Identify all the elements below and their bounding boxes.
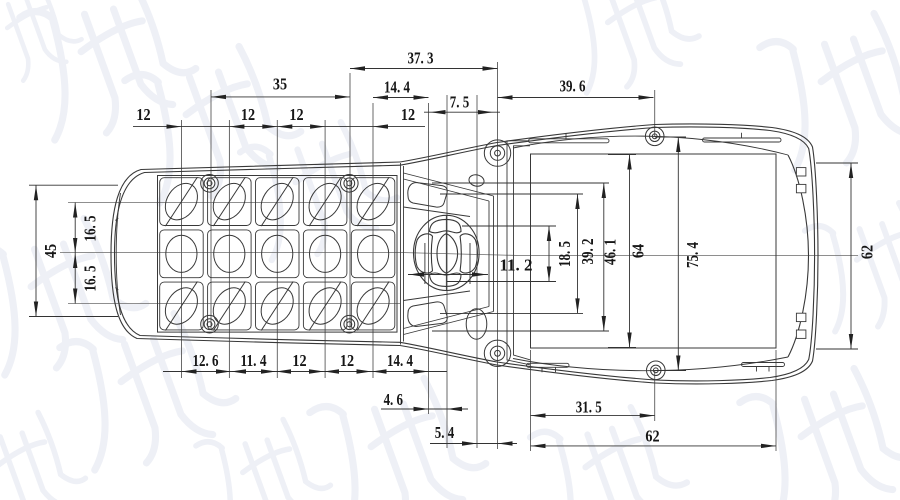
svg-text:18. 5: 18. 5 <box>555 241 574 267</box>
svg-text:12: 12 <box>289 105 303 124</box>
svg-text:31. 5: 31. 5 <box>576 398 602 417</box>
svg-text:45: 45 <box>41 244 60 258</box>
svg-text:62: 62 <box>858 245 877 259</box>
svg-text:12: 12 <box>401 105 415 124</box>
svg-text:46. 1: 46. 1 <box>601 239 620 265</box>
svg-text:7. 5: 7. 5 <box>450 93 469 112</box>
svg-text:11. 2: 11. 2 <box>500 256 533 275</box>
svg-text:12. 6: 12. 6 <box>193 351 219 370</box>
svg-text:64: 64 <box>629 243 648 258</box>
svg-text:62: 62 <box>645 427 659 446</box>
svg-text:14. 4: 14. 4 <box>387 351 413 370</box>
svg-text:39. 2: 39. 2 <box>578 239 597 265</box>
svg-text:35: 35 <box>273 75 287 94</box>
svg-text:37. 3: 37. 3 <box>408 49 434 68</box>
svg-text:16. 5: 16. 5 <box>81 216 100 242</box>
svg-text:16. 5: 16. 5 <box>81 266 100 292</box>
svg-text:39. 6: 39. 6 <box>560 77 586 96</box>
svg-text:14. 4: 14. 4 <box>384 78 410 97</box>
svg-text:4. 6: 4. 6 <box>384 390 403 409</box>
svg-text:12: 12 <box>136 105 150 124</box>
svg-text:11. 4: 11. 4 <box>241 351 267 370</box>
svg-text:12: 12 <box>292 351 306 370</box>
svg-text:12: 12 <box>241 105 255 124</box>
svg-text:5. 4: 5. 4 <box>435 423 455 442</box>
svg-text:75. 4: 75. 4 <box>683 242 702 268</box>
svg-text:12: 12 <box>340 351 354 370</box>
